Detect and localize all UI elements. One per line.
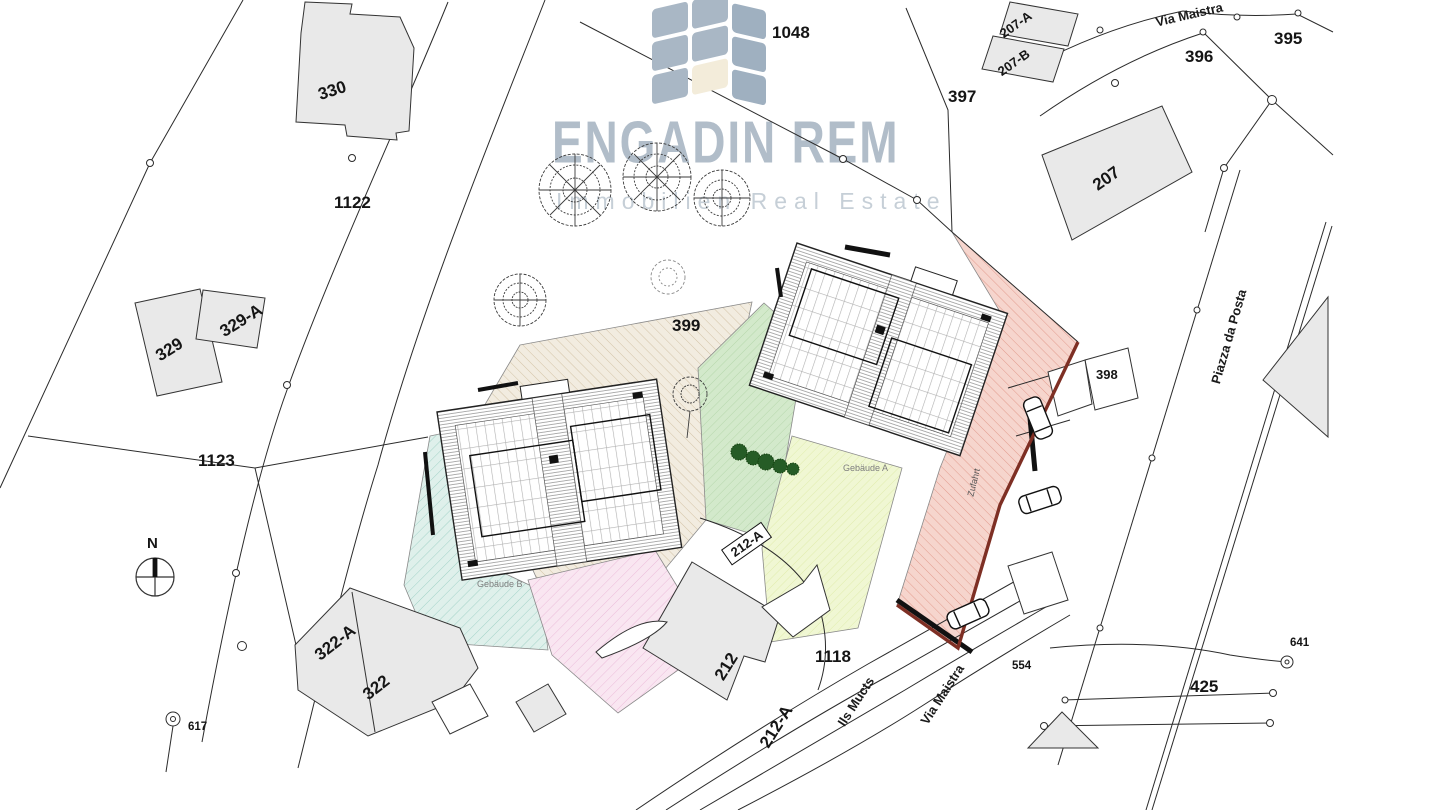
gray-triangle-bottom	[1028, 712, 1098, 748]
building-small-1	[516, 684, 566, 732]
parcel-label-1048: 1048	[772, 24, 810, 41]
engadin-rem-logo-cube	[646, 0, 776, 108]
point-label-641: 641	[1290, 638, 1309, 650]
parcel-label-425: 425	[1190, 678, 1218, 695]
map-layer	[0, 0, 1440, 810]
site-plan: ENGADIN REM Immobilien Real Estate	[0, 0, 1440, 810]
tree-icon	[494, 274, 546, 326]
gray-triangle-right	[1263, 297, 1328, 437]
annotation-gebaeude-b: Gebäude B	[477, 580, 523, 589]
north-compass-icon	[136, 558, 174, 596]
parcel-label-1122: 1122	[334, 194, 371, 211]
new-building-a	[749, 229, 1012, 456]
parcel-label-398: 398	[1096, 368, 1118, 381]
tree-icon	[539, 154, 611, 226]
tree-icon	[694, 170, 750, 226]
tree-icon	[673, 377, 707, 438]
bushes	[731, 444, 799, 475]
annotation-gebaeude-a: Gebäude A	[843, 464, 888, 473]
building-212	[643, 562, 780, 700]
building-330	[296, 2, 414, 140]
parcel-label-397: 397	[948, 88, 976, 105]
compass-north-label: N	[147, 536, 158, 551]
parcel-label-399: 399	[672, 317, 700, 334]
parcel-label-554: 554	[1012, 661, 1031, 673]
parcel-label-396: 396	[1185, 48, 1213, 65]
tree-icon	[651, 260, 685, 294]
benchmark-641	[1281, 656, 1293, 668]
tree-icon	[623, 143, 691, 211]
existing-buildings	[135, 2, 1328, 748]
parcel-label-1123: 1123	[198, 452, 235, 469]
benchmark-617	[166, 712, 180, 726]
parcel-label-395: 395	[1274, 30, 1302, 47]
new-building-b	[435, 366, 682, 580]
point-label-617: 617	[188, 722, 207, 734]
car-icon	[945, 597, 991, 631]
parcel-label-1118: 1118	[815, 648, 851, 665]
car-icon	[1017, 485, 1063, 515]
stall-row	[1008, 552, 1068, 614]
